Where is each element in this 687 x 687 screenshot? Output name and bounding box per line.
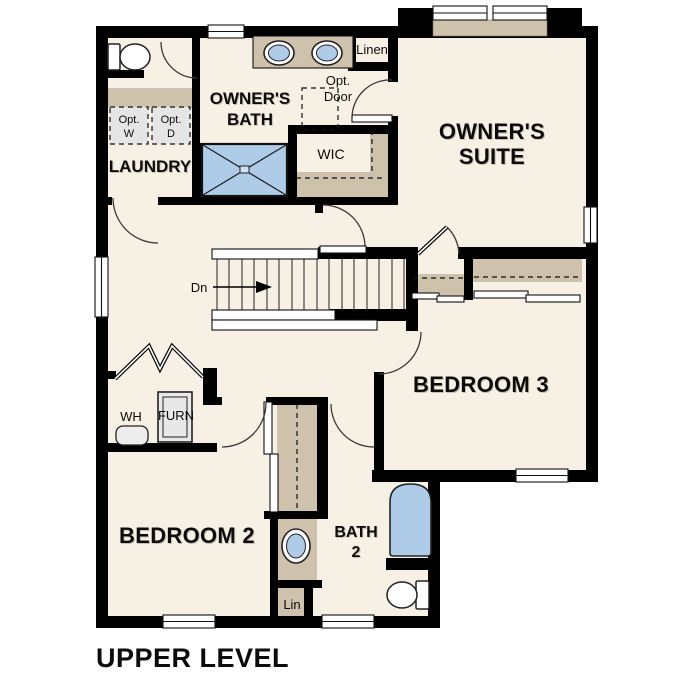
wall-hall-b: [158, 197, 398, 205]
window-right: [584, 207, 597, 243]
floorplan-drawing: OWNER'S BATH OWNER'S SUITE LAUNDRY WIC L…: [0, 0, 687, 687]
label-opt-d: D: [167, 128, 175, 140]
sink-icon: [264, 41, 294, 65]
label-opt-d: Opt.: [161, 114, 182, 126]
label-dn: Dn: [191, 280, 208, 295]
label-bedroom3: BEDROOM 3: [413, 372, 549, 397]
wall-b2closet-east: [317, 397, 328, 517]
wall-bedroom3-west: [374, 372, 384, 475]
door-leaf-owners-bath: [320, 246, 366, 253]
window-bay-right: [493, 6, 547, 20]
bay-window-seat: [433, 20, 547, 36]
water-heater-icon: [116, 426, 148, 445]
wall-vanity-lin: [270, 580, 322, 588]
stair-rail-top: [212, 249, 318, 259]
wall-tub-toilet: [386, 558, 440, 570]
label-opt-door: Opt.: [326, 73, 351, 88]
label-bath2: BATH: [334, 524, 377, 541]
sink-icon: [282, 529, 310, 563]
laundry-counter: [108, 88, 192, 108]
label-owners-suite: OWNER'S: [439, 119, 545, 144]
floorplan-page: OWNER'S BATH OWNER'S SUITE LAUNDRY WIC L…: [0, 0, 687, 687]
wall-vanity-west: [270, 514, 278, 624]
label-owners-suite: SUITE: [459, 144, 525, 169]
bedroom3-closet-door: [526, 295, 580, 302]
label-bedroom2: BEDROOM 2: [119, 523, 255, 548]
label-furn: FURN: [158, 408, 194, 423]
bedroom3-closet-shelf: [472, 258, 582, 282]
label-wh: WH: [120, 409, 142, 424]
label-linen: Linen: [356, 42, 388, 57]
double-vanity: [253, 36, 353, 68]
hall-linen-door: [437, 296, 464, 302]
wall-hall-a: [96, 197, 112, 205]
label-opt-door: Door: [324, 89, 353, 104]
window-bottom-right: [322, 615, 374, 628]
label-opt-w: W: [124, 128, 135, 140]
wall-whcloset-east: [203, 368, 217, 405]
wall-stair-bottom: [330, 309, 418, 321]
label-bath2: 2: [352, 544, 361, 561]
window-top: [208, 25, 244, 38]
wall-left: [96, 26, 108, 628]
bedroom2-closet-door: [270, 454, 278, 512]
door-leaf-wic: [352, 115, 392, 122]
wall-bottom: [96, 616, 440, 628]
wall-wic-west: [288, 125, 297, 202]
toilet-icon: [387, 581, 429, 609]
wall-halllinen-east: [464, 253, 473, 300]
window-bedroom3: [516, 469, 568, 482]
wall-suite-west-top: [388, 26, 398, 82]
wall-wc-nook: [96, 70, 144, 78]
label-laundry: LAUNDRY: [109, 157, 192, 176]
shower-icon: [202, 144, 287, 196]
hall-linen-door: [412, 293, 439, 299]
label-owners-bath: OWNER'S: [210, 89, 291, 108]
label-lin: Lin: [283, 597, 300, 612]
toilet-icon: [108, 44, 150, 70]
bay-pier-right: [546, 8, 582, 36]
window-bay-left: [433, 6, 487, 20]
hall-rail: [212, 320, 377, 330]
plan-title: UPPER LEVEL: [96, 643, 289, 673]
bathtub-icon: [390, 484, 431, 556]
sink-icon: [312, 41, 342, 65]
bay-pier-left: [398, 8, 434, 36]
window-left: [95, 257, 108, 317]
label-opt-w: Opt.: [119, 114, 140, 126]
wall-stub-bath-door: [315, 205, 323, 213]
label-wic: WIC: [317, 146, 344, 162]
bedroom3-closet-door: [474, 291, 528, 298]
wall-lin-east: [304, 588, 313, 622]
label-owners-bath: BATH: [227, 110, 273, 129]
wic-shelf-south: [295, 172, 388, 198]
wall-suite-bedroom3: [458, 247, 598, 259]
window-bottom-left: [163, 615, 215, 628]
stair-rail-bottom: [212, 310, 335, 320]
